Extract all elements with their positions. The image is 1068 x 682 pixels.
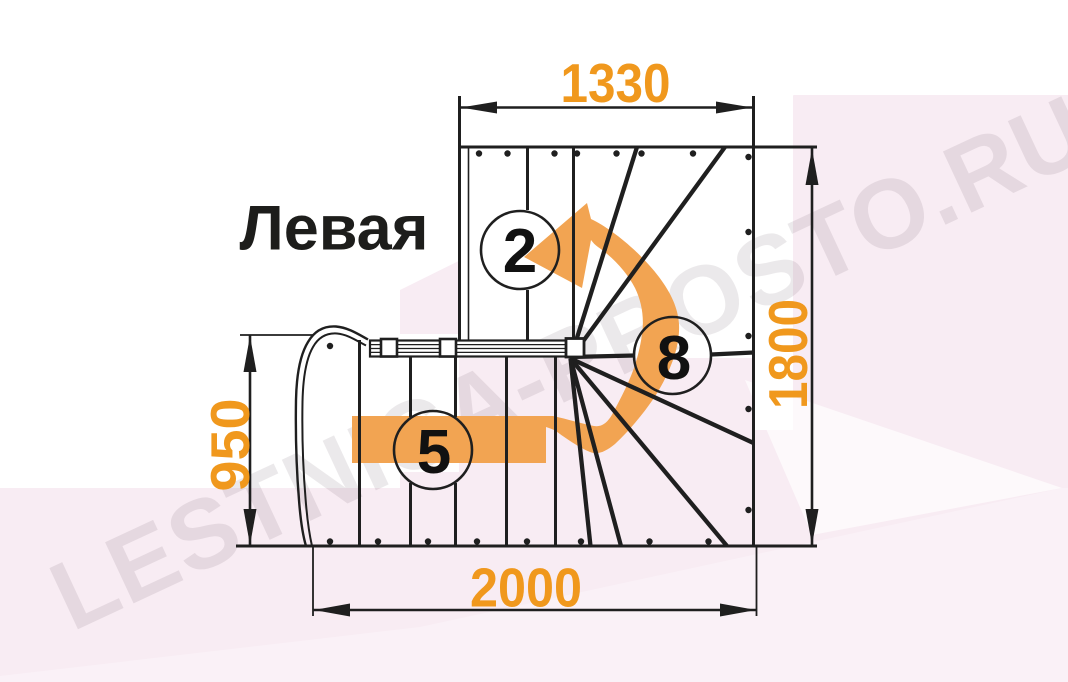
svg-text:1330: 1330 — [561, 52, 671, 114]
svg-text:1800: 1800 — [757, 299, 819, 409]
svg-text:Левая: Левая — [240, 194, 429, 264]
svg-text:5: 5 — [417, 418, 451, 487]
svg-text:2000: 2000 — [470, 557, 582, 619]
svg-text:8: 8 — [657, 324, 691, 393]
svg-text:2: 2 — [503, 217, 537, 286]
svg-text:950: 950 — [199, 399, 261, 492]
